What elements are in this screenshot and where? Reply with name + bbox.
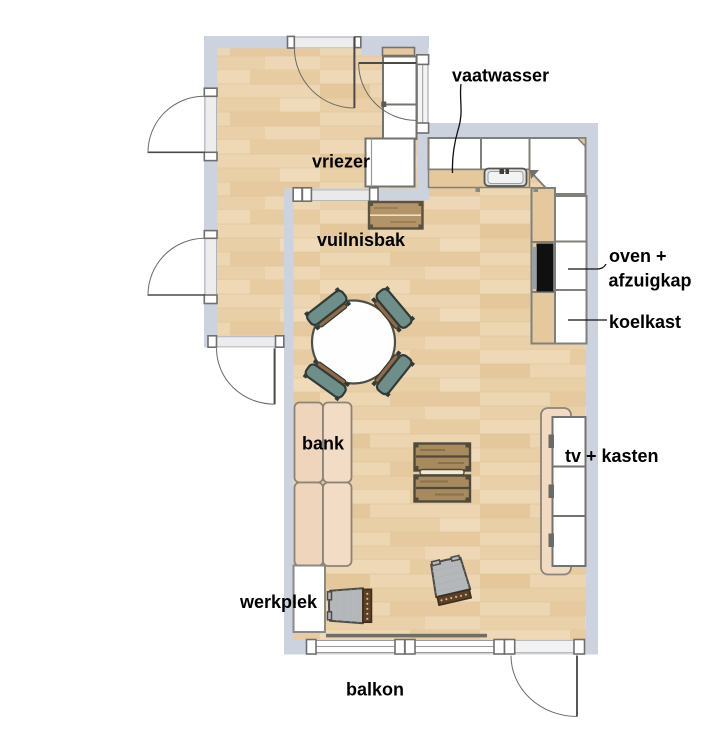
svg-text:werkplek: werkplek	[239, 592, 318, 612]
svg-text:koelkast: koelkast	[609, 312, 681, 332]
svg-text:vuilnisbak: vuilnisbak	[317, 230, 406, 250]
svg-text:vriezer: vriezer	[312, 152, 370, 172]
svg-text:oven +: oven +	[609, 246, 667, 266]
svg-text:vaatwasser: vaatwasser	[452, 66, 549, 86]
svg-text:afzuigkap: afzuigkap	[609, 271, 692, 291]
svg-text:balkon: balkon	[346, 680, 404, 700]
svg-text:tv + kasten: tv + kasten	[565, 446, 659, 466]
svg-text:bank: bank	[302, 434, 345, 454]
